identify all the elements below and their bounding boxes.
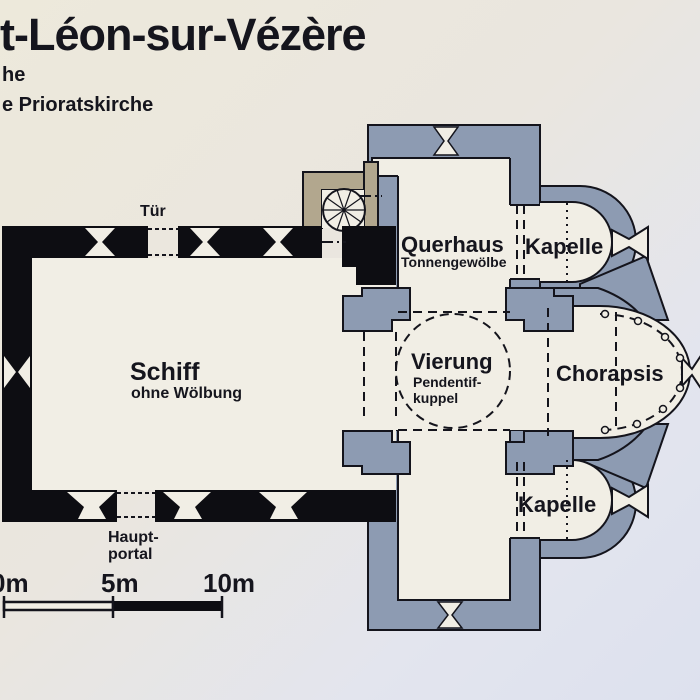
scale-segment-5-10 [113,601,222,611]
label-chorapsis: Chorapsis [556,361,664,386]
scale-label-10m: 10m [203,568,255,598]
screenshot-root: t-Léon-sur-Vézère he e Prioratskirche [0,0,700,700]
subtitle-line-2: e Prioratskirche [2,94,153,116]
nave-interior [32,258,396,490]
scale-label-5m: 5m [101,568,139,598]
page-title: t-Léon-sur-Vézère [0,9,366,60]
scale-segment-0-5 [4,602,113,610]
label-kapelle-sued: Kapelle [518,492,596,517]
subtitle-line-1: he [2,64,25,86]
south-transept-interior [398,430,510,600]
label-vierung-sub2: kuppel [413,390,458,406]
label-tuer: Tür [140,203,166,220]
label-kapelle-nord: Kapelle [525,234,603,259]
label-vierung-sub1: Pendentif- [413,374,482,390]
floor-plan-drawing: t-Léon-sur-Vézère he e Prioratskirche [0,0,700,700]
label-vierung: Vierung [411,349,493,374]
scale-label-0m: 0m [0,568,29,598]
label-querhaus-sub: Tonnengewölbe [401,254,507,270]
label-hauptportal-2: portal [108,546,152,563]
label-schiff: Schiff [130,358,200,386]
label-schiff-sub: ohne Wölbung [131,385,242,402]
label-hauptportal-1: Haupt- [108,529,159,546]
